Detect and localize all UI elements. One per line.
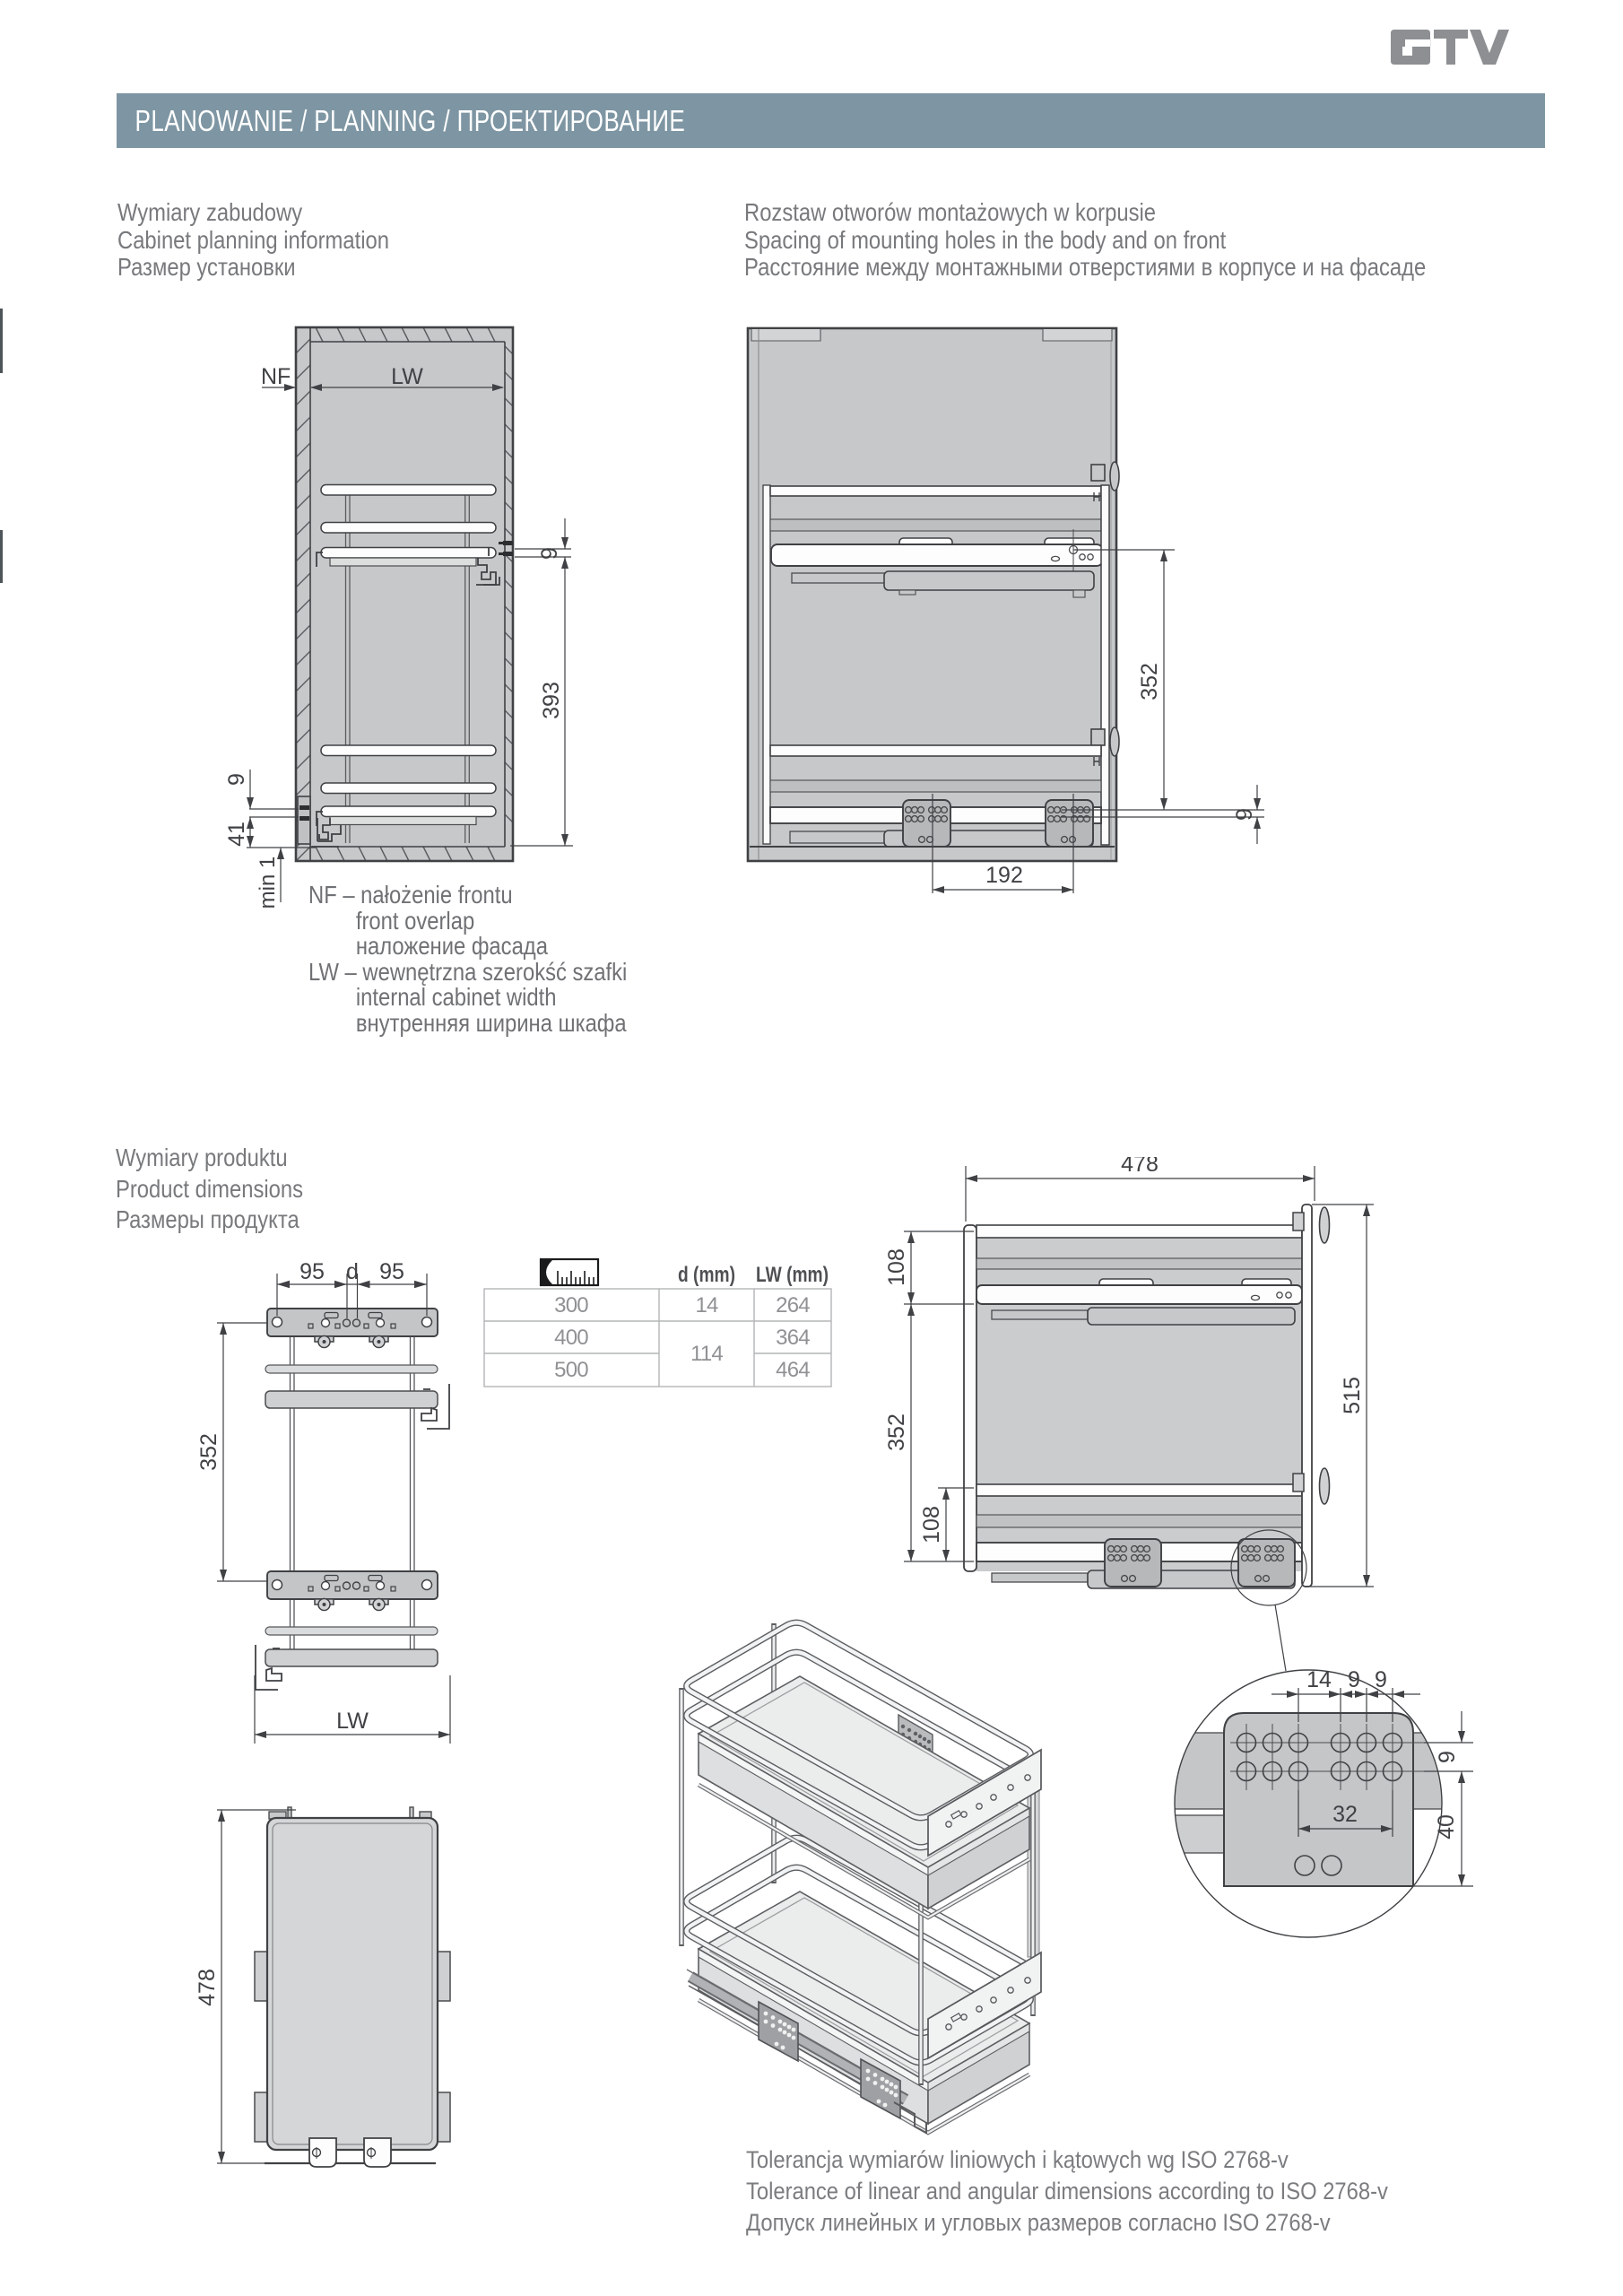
svg-text:NF: NF <box>261 364 291 389</box>
svg-text:min 1: min 1 <box>256 857 280 909</box>
svg-text:d: d <box>346 1259 359 1284</box>
svg-text:478: 478 <box>195 1969 220 2006</box>
svg-text:32: 32 <box>1332 1802 1358 1827</box>
svg-text:478: 478 <box>1121 1157 1159 1177</box>
svg-text:108: 108 <box>884 1248 909 1286</box>
svg-text:515: 515 <box>1340 1377 1365 1414</box>
svg-text:352: 352 <box>884 1413 909 1451</box>
svg-text:40: 40 <box>1434 1814 1459 1839</box>
svg-text:9: 9 <box>224 773 249 786</box>
svg-text:352: 352 <box>196 1433 221 1471</box>
svg-text:14: 14 <box>695 1293 718 1318</box>
svg-text:108: 108 <box>919 1506 944 1544</box>
svg-text:9: 9 <box>537 547 562 560</box>
svg-text:95: 95 <box>379 1259 404 1284</box>
svg-text:352: 352 <box>1137 663 1162 700</box>
svg-text:LW: LW <box>336 1709 369 1734</box>
svg-text:9: 9 <box>1232 808 1257 821</box>
svg-text:264: 264 <box>776 1293 810 1318</box>
svg-text:9: 9 <box>1348 1667 1360 1692</box>
svg-text:14: 14 <box>1306 1667 1332 1692</box>
svg-text:192: 192 <box>985 863 1023 888</box>
svg-text:95: 95 <box>299 1259 325 1284</box>
svg-text:364: 364 <box>776 1326 810 1350</box>
svg-text:9: 9 <box>1435 1751 1460 1763</box>
svg-text:464: 464 <box>776 1358 810 1382</box>
svg-text:9: 9 <box>1375 1667 1387 1692</box>
svg-text:LW: LW <box>391 364 423 389</box>
svg-text:114: 114 <box>690 1342 723 1366</box>
svg-text:41: 41 <box>224 822 249 847</box>
svg-text:393: 393 <box>539 682 564 719</box>
